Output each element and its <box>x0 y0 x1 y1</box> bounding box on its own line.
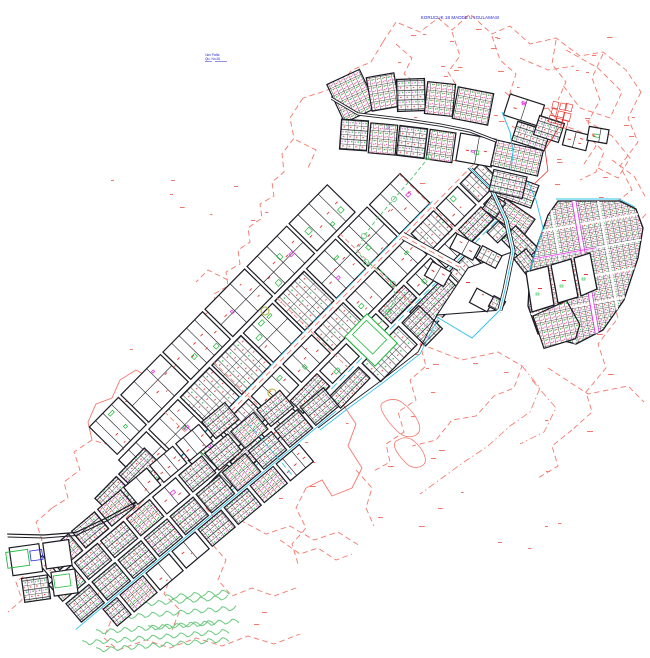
svg-text:KORUCUK 18 MADDE UYGULAMASI: KORUCUK 18 MADDE UYGULAMASI <box>421 15 500 20</box>
svg-text:Qlc. No:26: Qlc. No:26 <box>205 57 220 61</box>
